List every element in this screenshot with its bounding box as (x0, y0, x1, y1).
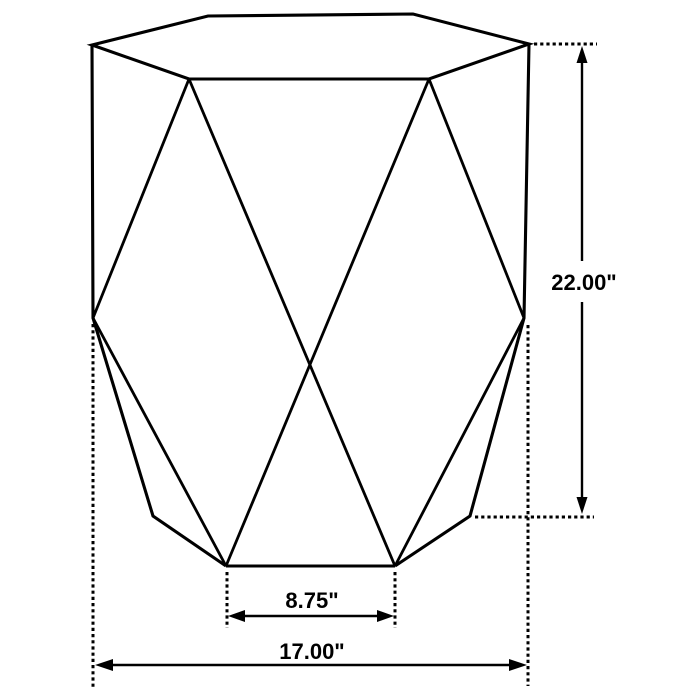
facet-line-topleft-to-midleft (93, 79, 189, 318)
right-silhouette-edge (395, 44, 529, 566)
arrow-right-icon (377, 610, 394, 622)
facet-line-midleft-to-bottomleft (93, 318, 226, 566)
facet-diagonal-right-to-left (226, 79, 429, 566)
height-dimension-label: 22.00" (551, 270, 616, 295)
facet-line-topright-to-midright (429, 79, 524, 318)
arrow-left-icon (228, 610, 245, 622)
facet-line-midright-to-bottomright (395, 318, 524, 566)
arrow-left-icon (95, 659, 113, 671)
base-width-dimension-label: 8.75" (285, 588, 338, 613)
left-silhouette-edge (92, 45, 226, 566)
arrow-right-icon (509, 659, 527, 671)
arrow-up-icon (577, 46, 588, 63)
facet-diagonal-left-to-right (189, 79, 395, 566)
table-outline (92, 14, 529, 566)
table-top-face-outline (92, 14, 529, 79)
product-dimension-diagram: 22.00" 8.75" 17.00" (0, 0, 700, 700)
overall-width-dimension: 17.00" (93, 324, 528, 688)
overall-width-dimension-label: 17.00" (279, 639, 344, 664)
base-width-dimension: 8.75" (227, 572, 395, 628)
arrow-down-icon (577, 497, 588, 514)
table-wireframe-drawing: 22.00" 8.75" 17.00" (0, 0, 700, 700)
height-dimension: 22.00" (475, 44, 617, 517)
